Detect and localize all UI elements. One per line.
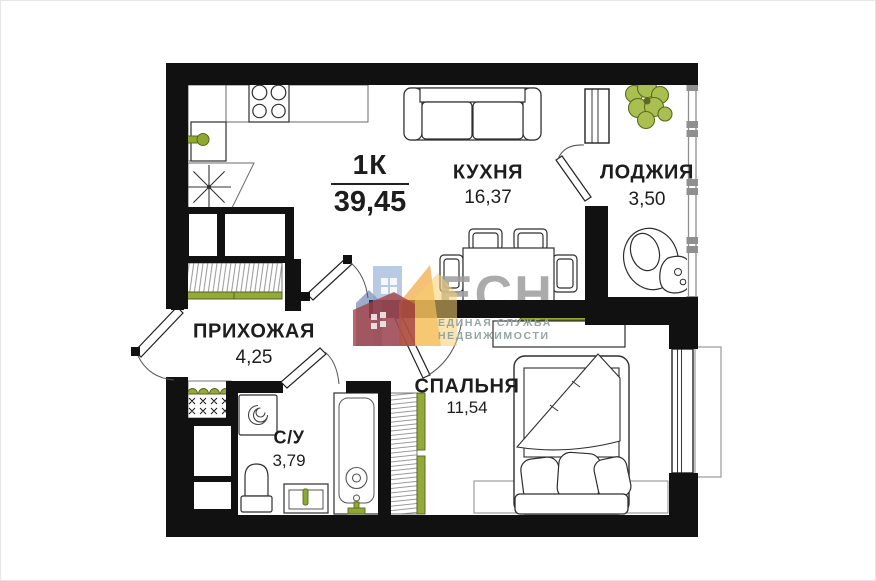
- room-area-loggia: 3,50: [629, 189, 666, 211]
- closet-niche-4: [194, 482, 231, 509]
- floor-plan-drawing: ЕСН: [1, 1, 876, 581]
- wall-kitchen-loggia: [585, 206, 608, 303]
- plant-icon: [626, 79, 673, 129]
- bed-icon: [514, 354, 633, 514]
- room-area-kitchen: 16,37: [464, 187, 512, 209]
- watermark-subtitle: ЕДИНАЯ СЛУЖБА НЕДВИЖИМОСТИ: [438, 317, 552, 343]
- shoe-rack-icon: [188, 381, 232, 418]
- wall-left-upper: [166, 63, 188, 309]
- entrance-door-icon: [131, 300, 184, 380]
- closet-niche-3: [194, 426, 231, 476]
- wall-loggia-bedroom: [585, 297, 698, 325]
- watermark-subtitle-line2: НЕДВИЖИМОСТИ: [438, 330, 552, 343]
- apartment-total-area: 39,45: [319, 186, 421, 219]
- room-label-bedroom: СПАЛЬНЯ: [415, 376, 520, 399]
- closet-niche-1: [189, 214, 217, 256]
- watermark-subtitle-line1: ЕДИНАЯ СЛУЖБА: [438, 317, 552, 330]
- wall-bath-right: [378, 383, 391, 515]
- fridge-star-icon: [187, 163, 254, 212]
- room-label-loggia: ЛОДЖИЯ: [600, 162, 694, 185]
- exterior-ledge: [695, 347, 721, 477]
- toilet-icon: [241, 464, 272, 512]
- room-label-kitchen: КУХНЯ: [453, 162, 523, 185]
- room-area-bedroom: 11,54: [446, 398, 487, 418]
- hall-wardrobe-icon: [187, 263, 282, 299]
- wall-bath-top-left: [226, 381, 283, 393]
- room-area-bathroom: 3,79: [272, 451, 305, 471]
- vanity-sink-icon: [284, 484, 328, 513]
- loggia-inner-window-icon: [585, 89, 609, 143]
- apartment-type: 1К: [319, 149, 421, 181]
- apartment-title: 1К 39,45: [319, 149, 421, 219]
- room-area-hallway: 4,25: [236, 347, 273, 369]
- closet-niche-2: [225, 214, 285, 256]
- shower-icon: [334, 393, 379, 514]
- balcony-door-icon: [556, 145, 591, 201]
- floor-plan: ЕСН: [0, 0, 876, 581]
- title-divider: [331, 183, 409, 185]
- wall-right-lower: [669, 473, 698, 537]
- kitchen-door-icon: [301, 255, 368, 301]
- wall-corner-stub: [285, 259, 301, 311]
- stove-icon: [249, 81, 289, 122]
- sofa-icon: [404, 88, 541, 140]
- bathroom-door-icon: [281, 348, 339, 388]
- room-label-hallway: ПРИХОЖАЯ: [193, 321, 315, 344]
- bedroom-wardrobe-icon: [389, 393, 425, 514]
- wall-top: [166, 63, 698, 85]
- bedroom-window-icon: [672, 349, 693, 473]
- loggia-glazing-icon: [687, 85, 699, 303]
- washing-machine-icon: [239, 395, 277, 435]
- wall-bottom: [166, 515, 698, 537]
- wall-left-lower: [166, 377, 188, 537]
- room-label-bathroom: С/У: [274, 428, 305, 449]
